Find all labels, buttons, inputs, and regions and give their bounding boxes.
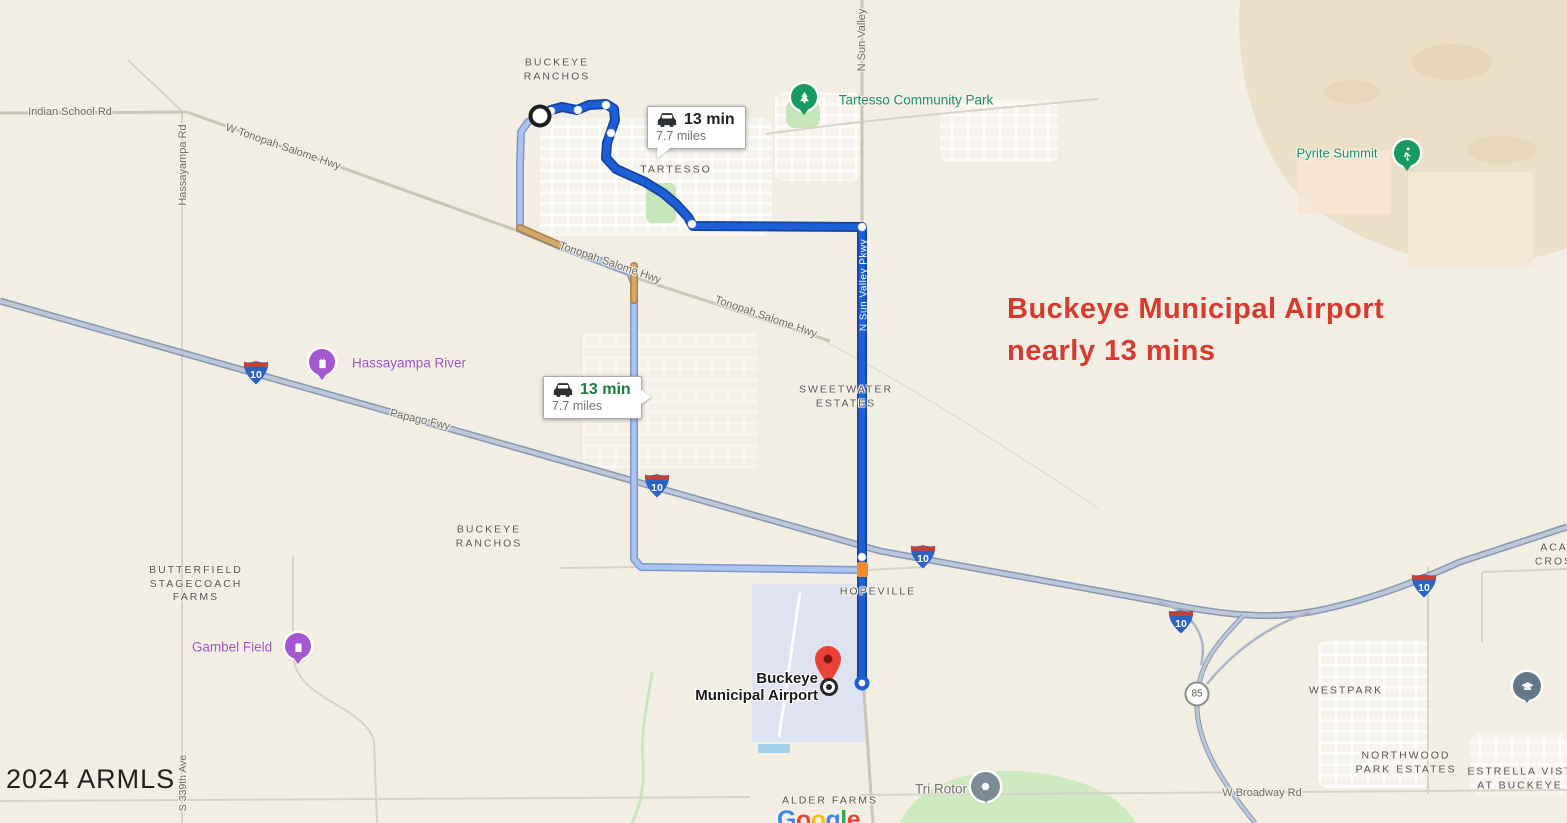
subdivision <box>940 100 1058 162</box>
tower-icon <box>291 639 306 654</box>
callout-tail <box>641 390 651 404</box>
annotation-text: Buckeye Municipal Airport nearly 13 mins <box>1007 288 1384 372</box>
subdivision-northwood <box>1470 733 1567 795</box>
destination-label[interactable]: Buckeye Municipal Airport <box>695 670 818 704</box>
tree-icon <box>797 90 812 105</box>
gambel-field-pin[interactable] <box>285 633 311 659</box>
airport-grounds <box>752 584 866 742</box>
google-logo[interactable]: Google <box>777 806 860 823</box>
subdivision-westpark <box>1318 640 1430 788</box>
tower-icon <box>315 355 330 370</box>
tartesso-park-pin[interactable] <box>791 84 817 110</box>
route-info-primary[interactable]: 13 min 7.7 miles <box>647 106 746 149</box>
watermark: 2024 ARMLS <box>6 764 175 795</box>
pyrite-summit-pin[interactable] <box>1394 140 1420 166</box>
i10-shield: 10 <box>243 361 269 385</box>
tri-rotor-pin[interactable] <box>971 772 1000 801</box>
car-icon <box>656 112 678 129</box>
primary-duration: 13 min <box>684 111 735 129</box>
school-pin[interactable] <box>1513 672 1541 700</box>
route-info-alternate[interactable]: 13 min 7.7 miles <box>543 376 642 419</box>
sr85-shield: 85 <box>1185 682 1210 707</box>
origin-marker[interactable] <box>529 105 552 128</box>
annotation-line1: Buckeye Municipal Airport <box>1007 288 1384 330</box>
route-end-marker[interactable] <box>855 676 870 691</box>
terrain-patch <box>1408 172 1533 267</box>
i10-shield: 10 <box>1168 610 1194 634</box>
traffic-segment <box>857 562 868 577</box>
i10-shield: 10 <box>1411 574 1437 598</box>
annotation-line2: nearly 13 mins <box>1007 330 1384 372</box>
pond <box>758 744 790 753</box>
graduation-cap-icon <box>1520 679 1535 694</box>
alternate-duration: 13 min <box>580 381 631 399</box>
i10-shield: 10 <box>910 545 936 569</box>
terrain-patch <box>1298 150 1390 214</box>
map-canvas[interactable]: Indian School Rd Hassayampa Rd W Tonopah… <box>0 0 1567 823</box>
dot-icon <box>978 779 993 794</box>
airport-target-icon[interactable] <box>819 677 839 702</box>
i10-shield: 10 <box>644 474 670 498</box>
primary-distance: 7.7 miles <box>656 129 735 143</box>
hassayampa-river-pin[interactable] <box>309 349 335 375</box>
alternate-distance: 7.7 miles <box>552 399 631 413</box>
car-icon <box>552 382 574 399</box>
hiker-icon <box>1400 146 1415 161</box>
